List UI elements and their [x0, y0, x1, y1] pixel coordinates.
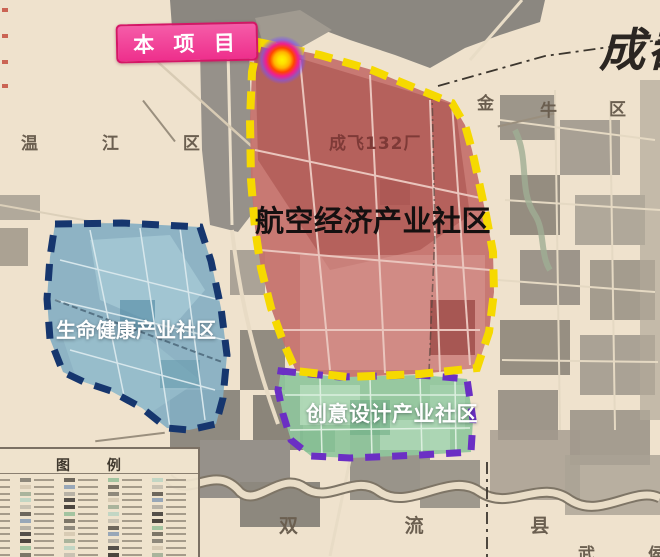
legend-label-line — [166, 513, 186, 515]
legend-label-line — [78, 499, 98, 501]
legend-swatch — [152, 492, 163, 496]
legend-swatch — [152, 485, 163, 489]
map-frame-tick — [2, 8, 8, 12]
legend-label-line — [78, 547, 98, 549]
legend-label-line — [0, 547, 10, 549]
legend-swatch — [64, 519, 75, 523]
legend-label-line — [78, 513, 98, 515]
project-callout: 本 项 目 — [116, 22, 259, 64]
legend-label-line — [166, 533, 186, 535]
legend-swatch — [152, 532, 163, 536]
legend-label-line — [78, 486, 98, 488]
legend-title: 图 例 — [56, 455, 137, 475]
planning-map: 本 项 目 成都 温 江 区 金 牛 区 双 流 县 武 侯 成飞132厂 航空… — [0, 0, 660, 557]
legend-label-line — [166, 486, 186, 488]
legend-swatch — [108, 485, 119, 489]
project-location-marker — [258, 36, 306, 84]
factory-label-chengfei132: 成飞132厂 — [329, 136, 422, 153]
legend-swatch — [152, 512, 163, 516]
zone-label-creative: 创意设计产业社区 — [306, 404, 478, 425]
legend-swatch — [64, 526, 75, 530]
legend-label-line — [166, 493, 186, 495]
legend-label-line — [34, 479, 54, 481]
zone-label-aviation: 航空经济产业社区 — [255, 207, 491, 236]
legend-label-line — [122, 506, 142, 508]
legend-swatch — [64, 492, 75, 496]
legend-label-line — [0, 506, 10, 508]
legend-swatch — [20, 526, 31, 530]
legend-swatch — [64, 512, 75, 516]
legend-swatch — [20, 485, 31, 489]
legend-label-line — [34, 520, 54, 522]
legend-label-line — [34, 527, 54, 529]
legend-label-line — [34, 554, 54, 556]
legend-swatch — [108, 492, 119, 496]
city-label-chengdu: 成都 — [599, 27, 660, 73]
legend-label-line — [0, 513, 10, 515]
legend-label-line — [34, 547, 54, 549]
legend-label-line — [122, 533, 142, 535]
legend-divider — [0, 473, 198, 474]
legend-swatch — [152, 505, 163, 509]
legend-swatch — [20, 532, 31, 536]
district-label-jinniu-char2: 牛 — [540, 96, 557, 121]
legend-swatch — [64, 485, 75, 489]
legend-swatch — [152, 478, 163, 482]
map-frame-tick — [2, 84, 8, 88]
legend-label-line — [34, 499, 54, 501]
legend-label-line — [0, 533, 10, 535]
district-label-wuhou-char1: 武 — [578, 540, 595, 557]
legend-swatch — [64, 539, 75, 543]
legend-swatch — [108, 526, 119, 530]
legend-swatch — [152, 539, 163, 543]
legend-swatch — [108, 478, 119, 482]
legend-swatch — [152, 526, 163, 530]
legend-swatch — [64, 478, 75, 482]
legend-label-line — [34, 506, 54, 508]
legend-swatch — [108, 519, 119, 523]
legend-label-line — [0, 486, 10, 488]
legend-swatch — [108, 546, 119, 550]
legend-label-line — [166, 554, 186, 556]
legend-label-line — [166, 540, 186, 542]
legend-label-line — [78, 533, 98, 535]
legend-label-line — [122, 513, 142, 515]
legend-label-line — [78, 506, 98, 508]
legend-swatch — [108, 512, 119, 516]
legend-label-line — [122, 540, 142, 542]
legend-swatch — [64, 532, 75, 536]
legend-label-line — [166, 547, 186, 549]
legend-swatch — [20, 512, 31, 516]
district-label-jinniu-char3: 区 — [609, 95, 626, 120]
legend-label-line — [166, 499, 186, 501]
legend-swatch — [108, 505, 119, 509]
legend-swatch — [20, 539, 31, 543]
legend-label-line — [78, 479, 98, 481]
legend-swatch — [152, 546, 163, 550]
legend-label-line — [0, 554, 10, 556]
legend-label-line — [122, 554, 142, 556]
legend-swatch — [152, 553, 163, 557]
legend-label-line — [0, 479, 10, 481]
legend-label-line — [34, 513, 54, 515]
legend-label-line — [34, 533, 54, 535]
legend-label-line — [34, 493, 54, 495]
legend-label-line — [122, 520, 142, 522]
legend-swatch — [20, 478, 31, 482]
map-legend: 图 例 — [0, 447, 200, 557]
legend-label-line — [0, 527, 10, 529]
legend-items — [0, 478, 194, 557]
legend-swatch — [20, 505, 31, 509]
legend-swatch — [20, 498, 31, 502]
legend-swatch — [108, 498, 119, 502]
legend-swatch — [64, 553, 75, 557]
legend-swatch — [108, 532, 119, 536]
legend-label-line — [166, 506, 186, 508]
zone-label-health: 生命健康产业社区 — [56, 320, 216, 340]
map-frame-tick — [2, 34, 8, 38]
legend-label-line — [78, 540, 98, 542]
map-frame-tick — [2, 60, 8, 64]
legend-label-line — [122, 486, 142, 488]
legend-swatch — [20, 519, 31, 523]
legend-swatch — [152, 498, 163, 502]
legend-label-line — [122, 479, 142, 481]
legend-label-line — [34, 486, 54, 488]
legend-swatch — [64, 498, 75, 502]
legend-label-line — [34, 540, 54, 542]
legend-swatch — [108, 539, 119, 543]
legend-label-line — [78, 554, 98, 556]
district-label-wenjiang: 温 江 区 — [21, 136, 229, 153]
legend-label-line — [166, 479, 186, 481]
district-label-shuangliu: 双 流 县 — [279, 517, 599, 536]
legend-swatch — [108, 553, 119, 557]
legend-label-line — [166, 527, 186, 529]
legend-label-line — [122, 499, 142, 501]
legend-swatch — [152, 519, 163, 523]
project-callout-label: 本 项 目 — [133, 26, 241, 58]
legend-swatch — [64, 546, 75, 550]
legend-label-line — [0, 493, 10, 495]
legend-swatch — [64, 505, 75, 509]
legend-swatch — [20, 553, 31, 557]
legend-label-line — [122, 547, 142, 549]
legend-label-line — [0, 499, 10, 501]
legend-label-line — [0, 540, 10, 542]
legend-label-line — [78, 527, 98, 529]
legend-swatch — [20, 492, 31, 496]
legend-label-line — [78, 520, 98, 522]
district-label-wuhou-char2: 侯 — [648, 540, 660, 557]
legend-label-line — [0, 520, 10, 522]
legend-swatch — [20, 546, 31, 550]
legend-label-line — [166, 520, 186, 522]
legend-label-line — [122, 493, 142, 495]
legend-label-line — [122, 527, 142, 529]
district-label-jinniu-char1: 金 — [477, 89, 494, 114]
legend-label-line — [78, 493, 98, 495]
